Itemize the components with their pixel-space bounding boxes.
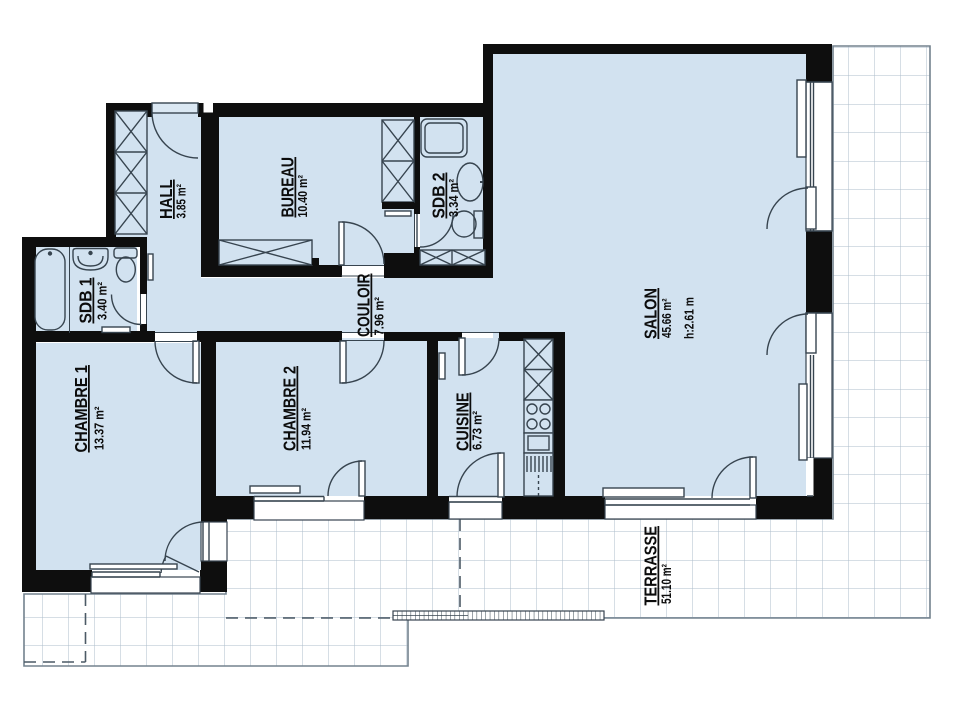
svg-text:45.66 m²: 45.66 m² <box>659 298 674 338</box>
svg-text:3.85 m²: 3.85 m² <box>174 183 189 218</box>
svg-text:h:2.61 m: h:2.61 m <box>682 297 697 339</box>
svg-text:SDB 1: SDB 1 <box>76 277 96 323</box>
svg-text:6.73 m²: 6.73 m² <box>470 410 485 450</box>
svg-text:10.40 m²: 10.40 m² <box>295 174 310 217</box>
svg-text:CHAMBRE 1: CHAMBRE 1 <box>71 365 91 453</box>
svg-text:51.10 m²: 51.10 m² <box>659 564 674 604</box>
svg-text:11.94 m²: 11.94 m² <box>299 407 314 450</box>
svg-text:TERRASSE: TERRASSE <box>641 526 661 606</box>
svg-text:13.37 m²: 13.37 m² <box>92 406 107 450</box>
svg-text:COULOIR: COULOIR <box>354 273 374 337</box>
svg-text:3.34 m²: 3.34 m² <box>446 178 461 217</box>
svg-text:SALON: SALON <box>641 288 661 339</box>
svg-text:3.40 m²: 3.40 m² <box>95 281 110 320</box>
svg-text:CHAMBRE 2: CHAMBRE 2 <box>280 366 300 451</box>
svg-text:7.96 m²: 7.96 m² <box>372 296 387 335</box>
